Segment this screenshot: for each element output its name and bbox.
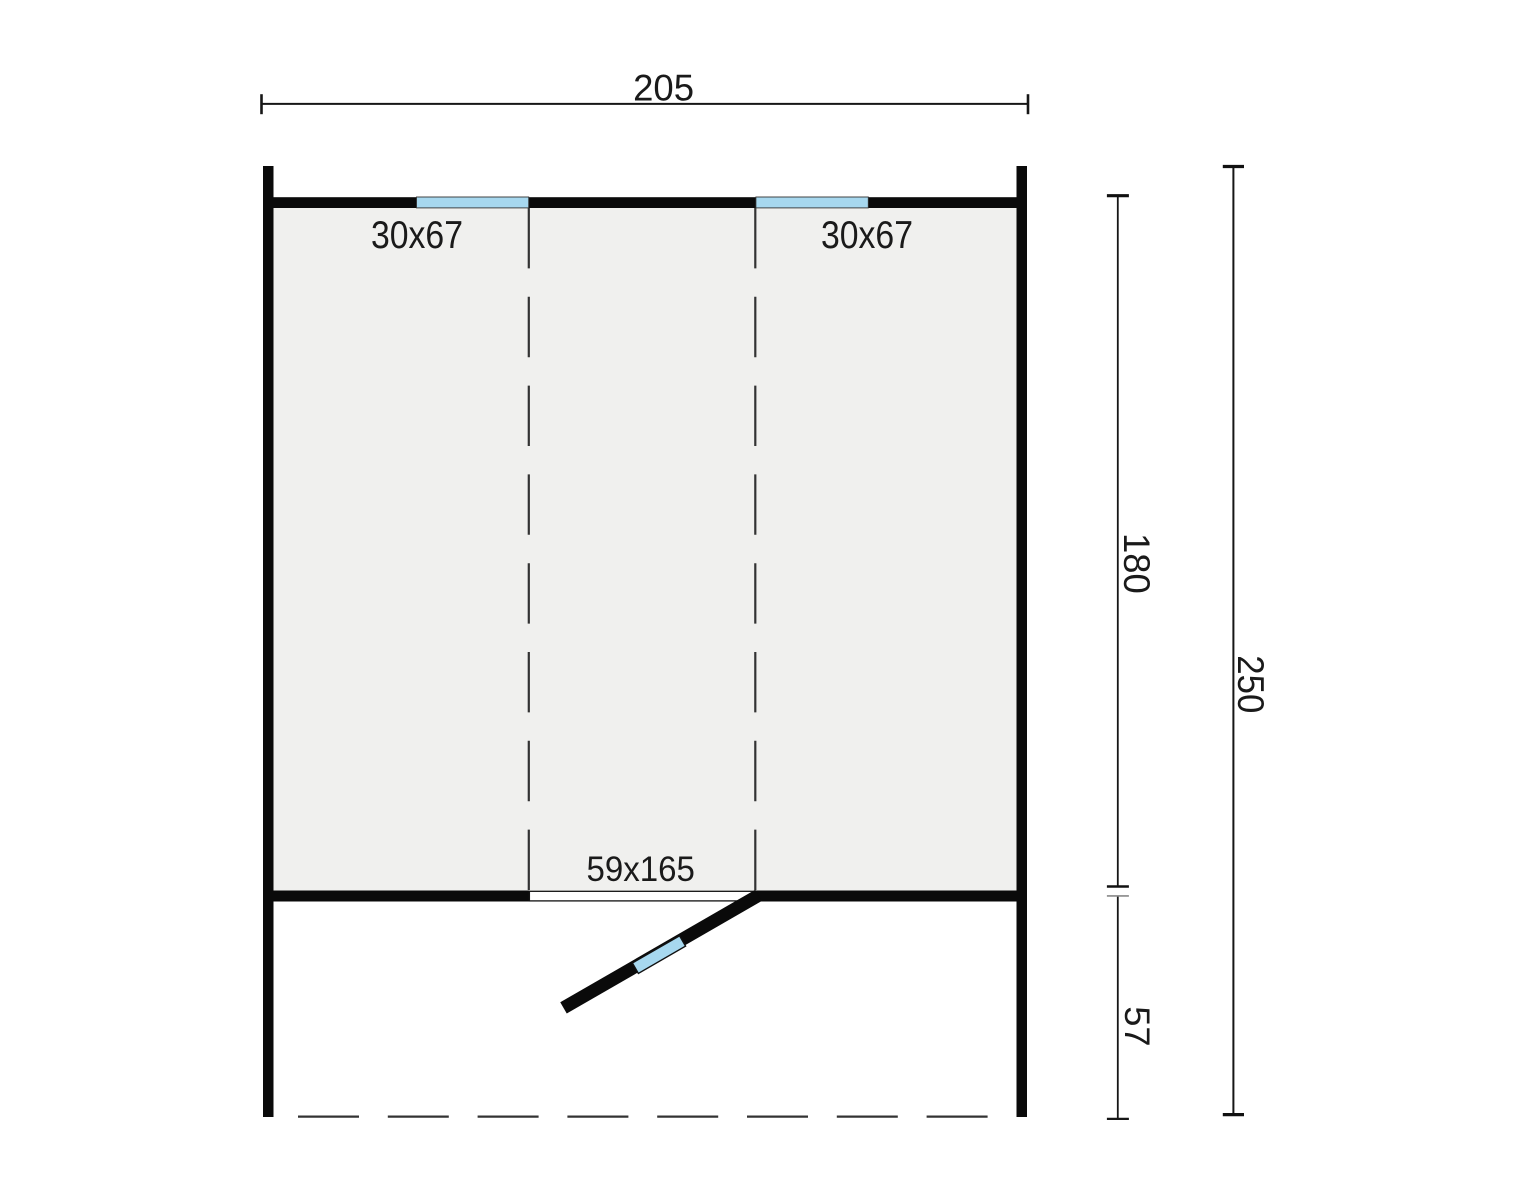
svg-text:180: 180 [1116, 533, 1158, 594]
svg-text:205: 205 [633, 67, 694, 109]
svg-text:30x67: 30x67 [371, 214, 463, 257]
svg-text:30x67: 30x67 [821, 214, 913, 257]
svg-text:59x165: 59x165 [587, 850, 695, 889]
svg-text:57: 57 [1117, 1006, 1156, 1046]
svg-text:250: 250 [1230, 655, 1271, 713]
